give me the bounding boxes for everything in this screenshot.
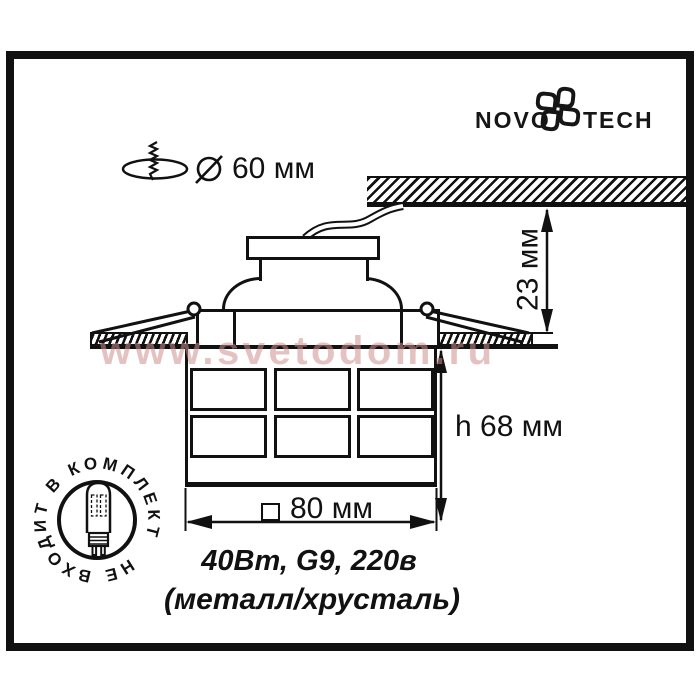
crystal-cell <box>274 368 351 411</box>
novotech-logo: NOVO TECH <box>470 80 680 150</box>
lamp-dome <box>222 277 403 309</box>
brand-flower-icon <box>532 76 584 142</box>
diameter-icon <box>193 152 227 186</box>
width-label: 80 мм <box>290 492 373 525</box>
depth-label: 23 мм <box>512 205 543 335</box>
crystal-cell <box>357 415 434 458</box>
square-icon <box>261 503 280 521</box>
product-dimension-diagram: NOVO TECH 60 мм <box>0 0 700 700</box>
crystal-cell <box>190 368 267 411</box>
drill-hole-icon <box>115 138 205 188</box>
watermark: www.svetodom.ru <box>100 329 496 374</box>
cutout-diameter-label: 60 мм <box>232 152 315 186</box>
crystal-cell <box>190 415 267 458</box>
ceiling-slab-top <box>367 176 686 207</box>
terminal-block <box>246 236 380 260</box>
crystal-cell <box>357 368 434 411</box>
height-label: h 68 мм <box>455 410 563 444</box>
brand-right-text: TECH <box>583 107 654 134</box>
not-included-stamp: НЕ ВХОДИТ В КОМПЛЕКТ <box>27 450 167 590</box>
crystal-cell <box>274 415 351 458</box>
width-label-row: 80 мм <box>261 495 373 529</box>
